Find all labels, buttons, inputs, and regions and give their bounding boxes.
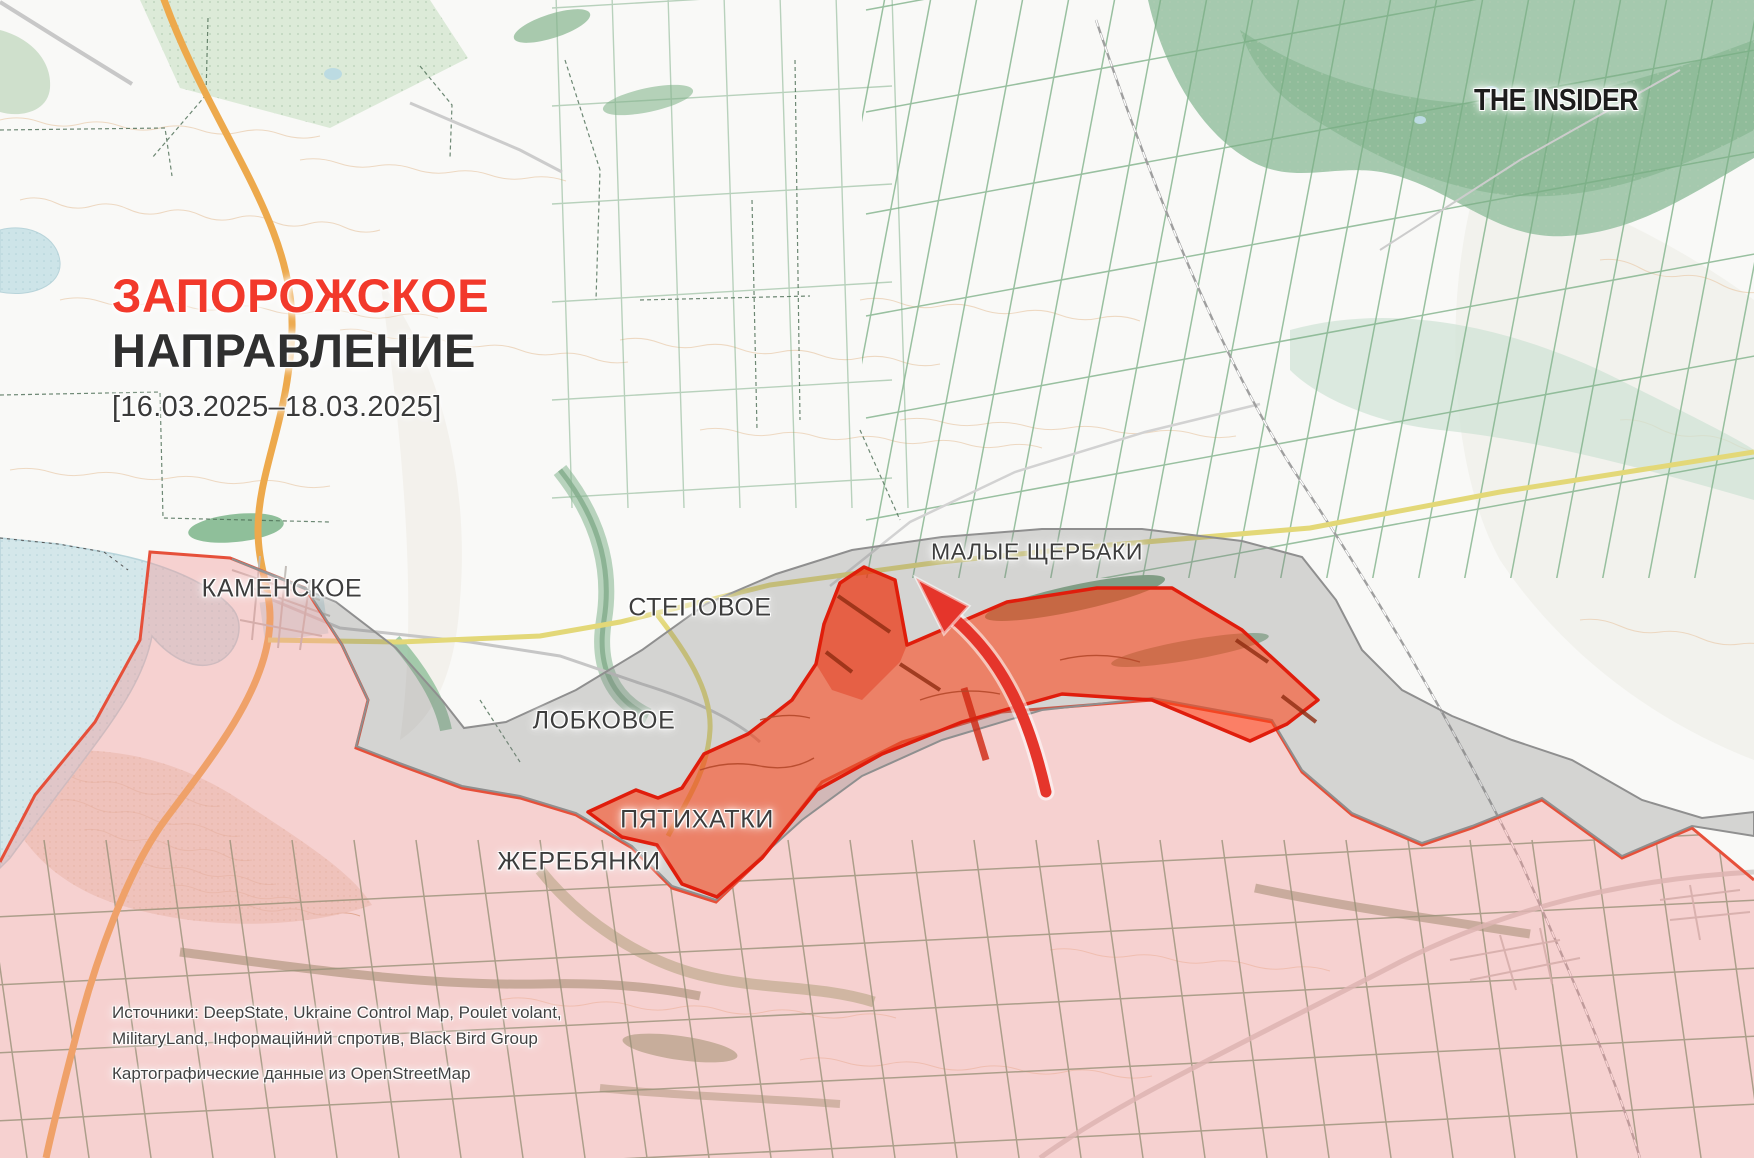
map: ЗАПОРОЖСКОЕ НАПРАВЛЕНИЕ [16.03.2025–18.0… [0,0,1754,1158]
map-graphic [0,0,1754,1158]
